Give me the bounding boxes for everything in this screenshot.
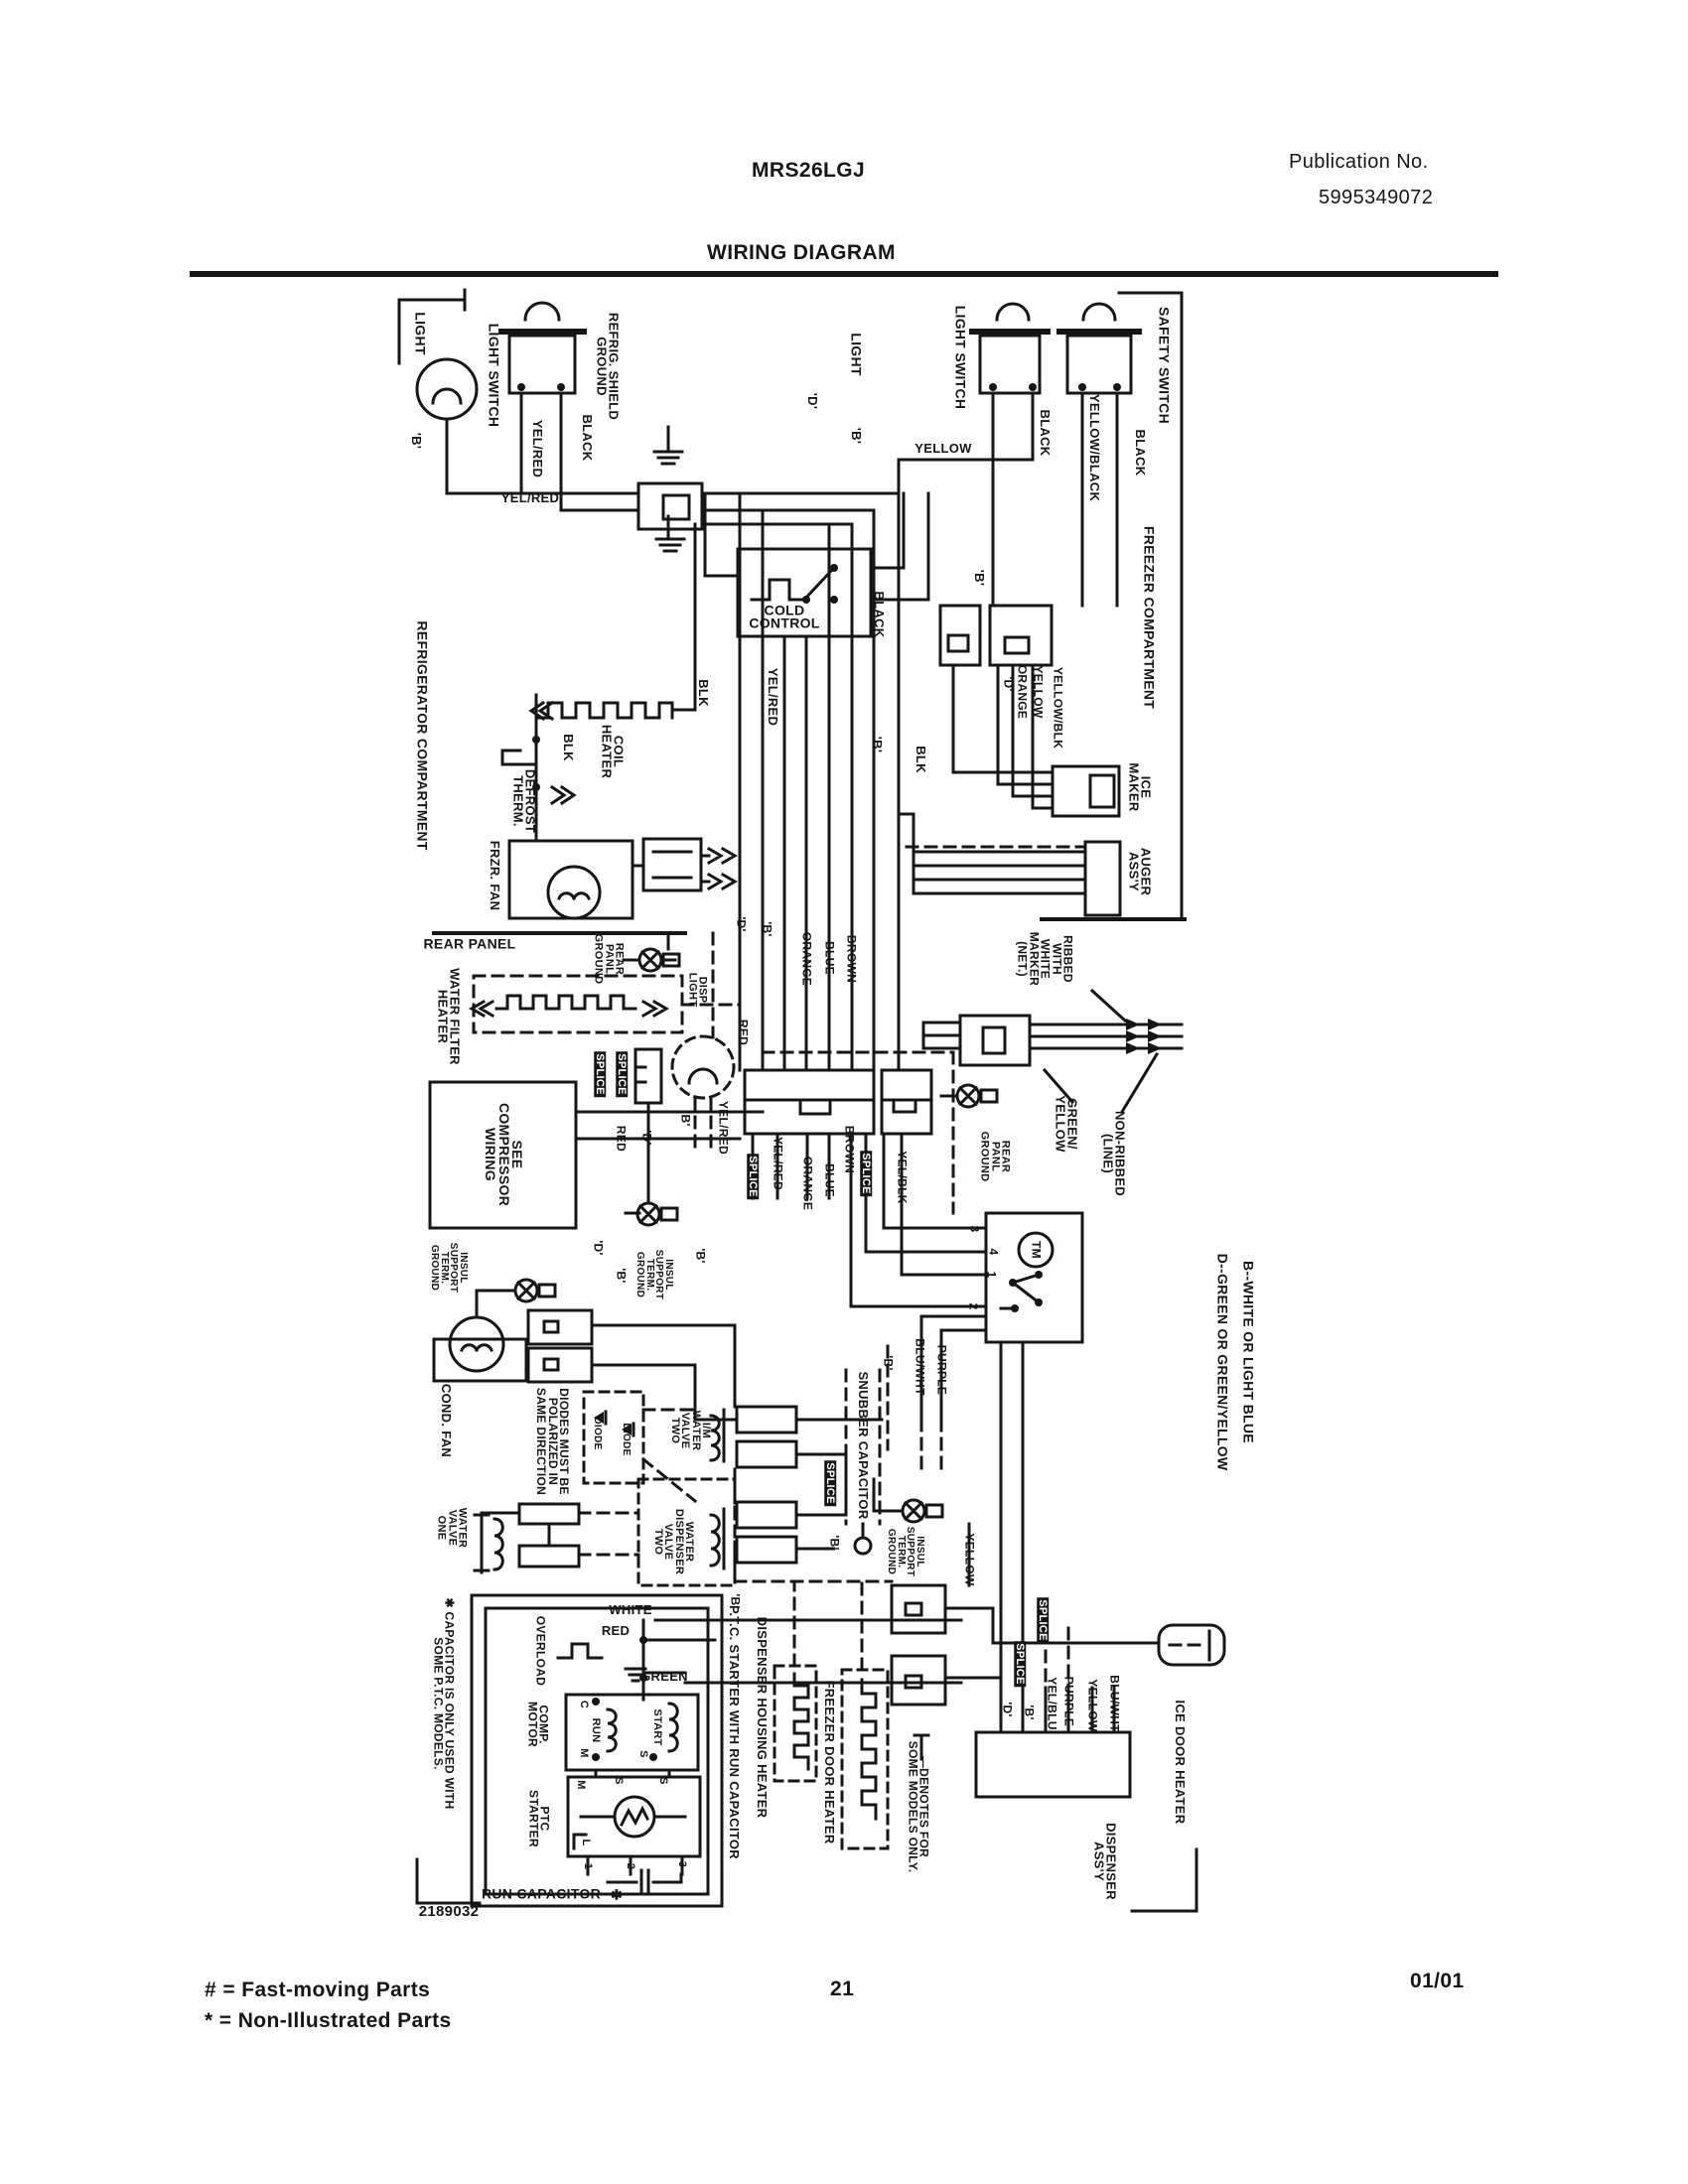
diagram-label: D--GREEN OR GREEN/YELLOW [1215,1254,1228,1471]
diagram-label: SPLICE [860,1151,872,1196]
diagram-label: PTC STARTER [527,1790,550,1847]
diagram-label: SPLICE [747,1154,759,1199]
diagram-label: FREEZER DOOR HEATER [823,1680,835,1843]
diagram-label: LIGHT SWITCH [953,306,966,410]
diagram-label: COLD CONTROL [749,605,819,631]
diagram-label: NON-RIBBED (LINE) [1101,1111,1126,1196]
diagram-label: P.T.C. STARTER WITH RUN CAPACITOR [728,1605,740,1859]
diagram-label: SPLICE [616,1051,628,1097]
diagram-label: AUGER ASS'Y [1127,848,1152,895]
diagram-label: 2 [967,1303,978,1310]
diagram-label: REAR PANEL [424,937,516,950]
diagram-label: BLK [914,746,926,773]
diagram-label: B--WHITE OR LIGHT BLUE [1241,1261,1254,1443]
diagram-label: YEL/RED [772,1137,782,1190]
diagram-label: REFRIGERATOR COMPARTMENT [415,620,428,850]
diagram-label: YELLOW/BLK [1052,667,1062,749]
diagram-label: BROWN [845,935,856,983]
diagram-label: 2 [626,1863,635,1869]
diagram-label: ORANGE [801,1157,812,1210]
diagram-label: S [638,1750,648,1758]
diagram-label: SAFETY SWITCH [1157,307,1170,424]
diagram-label: BLUE [823,941,834,975]
diagram-label: I/M WATER VALVE TWO [669,1411,711,1450]
diagram-label: DIODE [592,1417,602,1449]
diagram-label: SNUBBER CAPACITOR [857,1371,869,1519]
diagram-label: YEL/BLU [1046,1677,1056,1729]
diagram-label: 'D' [735,916,746,931]
diagram-label: 'B' [882,1355,893,1370]
diagram-label: YEL/RED [767,668,778,726]
diagram-label: 1 [583,1863,593,1869]
diagram-label: SPLICE [1014,1641,1026,1687]
diagram-label: 'D' [1002,676,1013,691]
diagram-label: S [614,1777,624,1785]
diagram-label: 2189032 [419,1905,480,1919]
diagram-label: DEFROST THERM. [511,769,536,833]
diagram-label: BLU/WHT [914,1338,924,1395]
diagram-label: 'D' [592,1240,603,1255]
diagram-label: ICE DOOR HEATER [1174,1701,1186,1825]
diagram-label: BLACK [873,592,885,638]
diagram-label: YEL/RED [501,492,559,504]
diagram-label: REAR PANL GROUND [593,934,624,985]
diagram-label: 'D' [640,1130,651,1145]
diagram-label: L [581,1839,591,1845]
page-number: 21 [830,1978,854,2001]
diagram-label: COND. FAN [440,1384,452,1457]
diagram-label: RIBBED WITH WHITE MARKER (NET.) [1017,932,1073,986]
diagram-label: 1 [985,1272,996,1279]
diagram-label: 4 [987,1249,998,1256]
diagram-label: ORANGE [1016,665,1027,719]
diagram-label: COIL HEATER [600,725,625,778]
diagram-label: GREEN [640,1671,688,1683]
diagram-label: 'D' [1001,1702,1012,1716]
diagram-label: WATER VALVE ONE [436,1508,467,1548]
diagram-label: INSUL SUPPORT TERM. GROUND [430,1243,468,1293]
wiring-diagram-artwork [0,0,1688,2184]
diagram-label: 'B' [615,1268,626,1283]
diagram-label: REAR PANL GROUND [979,1132,1010,1182]
diagram-label: 'B' [973,570,985,586]
diagram-label: FRZR. FAN [489,841,500,911]
diagram-label: WHITE [609,1604,651,1616]
diagram-label: FREEZER COMPARTMENT [1142,526,1155,709]
diagram-label: YELLOW [963,1533,974,1585]
diagram-label: SEE COMPRESSOR WIRING [484,1103,523,1206]
diagram-label: BLACK [1134,430,1146,477]
diagram-label: YEL/RED [531,420,543,478]
diagram-label: YELLOW [914,443,971,455]
diagram-label: M [579,1748,589,1757]
diagram-label: 'B' [850,428,862,444]
diagram-label: WATER DISPENSER VALVE TWO [652,1509,694,1574]
diagram-label: PURPLE [1062,1677,1073,1726]
diagram-label: BLU/WHT [1108,1675,1119,1731]
legend-non-illustrated: * = Non-Illustrated Parts [205,2009,452,2033]
diagram-label: DIODE [621,1423,631,1455]
diagram-label: YELLOW [1032,665,1043,718]
diagram-label: 'B' [1023,1705,1034,1719]
diagram-label: BLACK [1039,410,1051,457]
diagram-label: OVERLOAD [534,1616,545,1686]
diagram-label: M [576,1780,586,1789]
diagram-label: RED [615,1126,626,1152]
diagram-label: LIGHT [413,312,426,355]
legend-fast-moving: # = Fast-moving Parts [205,1979,430,2002]
page: MRS26LGJ Publication No. 5995349072 WIRI… [0,0,1688,2184]
diagram-label: 'B' [761,921,772,936]
diagram-label: YEL/BLK [896,1151,907,1203]
diagram-label: GREEN/ YELLOW [1054,1095,1078,1152]
diagram-label: RUN CAPACITOR [482,1887,601,1900]
diagram-label: ORANGE [800,932,811,986]
diagram-label: BLK [562,734,574,761]
diagram-label: 'B' [694,1248,705,1263]
diagram-label: PURPLE [935,1345,946,1395]
date-code: 01/01 [1410,1970,1465,1993]
diagram-label: RED [602,1625,630,1637]
diagram-label: 3 [968,1226,979,1233]
diagram-label: 'B' [828,1535,839,1550]
diagram-label: 3 [677,1861,687,1867]
diagram-label: BLK [697,679,709,707]
diagram-label: —DENOTES FOR SOME MODELS ONLY. [907,1741,929,1873]
diagram-label: 'B' [871,737,883,752]
diagram-label: COMP. MOTOR [526,1702,549,1747]
diagram-label: C [579,1701,589,1708]
diagram-label: RUN [591,1718,601,1743]
diagram-label: 'B' [410,433,422,449]
diagram-label: RED [737,1020,748,1045]
diagram-label: LIGHT [849,333,862,376]
diagram-label: SPLICE [824,1460,836,1506]
diagram-label: LIGHT SWITCH [487,324,499,428]
diagram-label: ✱ [611,1888,623,1901]
diagram-label: YELLOW [1086,1679,1097,1731]
diagram-label: DISP LIGHT [687,973,708,1008]
diagram-label: ICE MAKER [1127,762,1152,811]
diagram-label: DISPENSER HOUSING HEATER [756,1617,768,1819]
diagram-label: REFRIG. SHIELD GROUND [595,313,620,420]
diagram-label: S [658,1777,668,1785]
diagram-label: SPLICE [1037,1597,1049,1643]
diagram-label: YEL/RED [717,1101,728,1155]
diagram-label: 'D' [806,393,818,409]
diagram-label: BROWN [843,1126,854,1173]
diagram-label: 'B' [679,1111,690,1126]
diagram-label: ✱ CAPACITOR IS ONLY USED WITH SOME P.T.C… [432,1598,455,1810]
diagram-label: START [652,1708,662,1745]
diagram-label: YELLOW/BLACK [1088,394,1100,501]
diagram-label: BLACK [581,415,593,462]
diagram-label: DISPENSER ASS'Y [1092,1823,1117,1900]
diagram-label: BLUE [823,1163,834,1197]
diagram-label: SPLICE [594,1051,606,1097]
diagram-label: INSUL SUPPORT TERM. GROUND [887,1527,924,1576]
diagram-label: TM [1030,1241,1041,1259]
diagram-label: INSUL SUPPORT TERM. GROUND [635,1250,673,1299]
diagram-label: WATER FILTER HEATER [436,968,461,1065]
diagram-label: DIODES MUST BE POLARIZED IN SAME DIRECTI… [535,1388,569,1495]
